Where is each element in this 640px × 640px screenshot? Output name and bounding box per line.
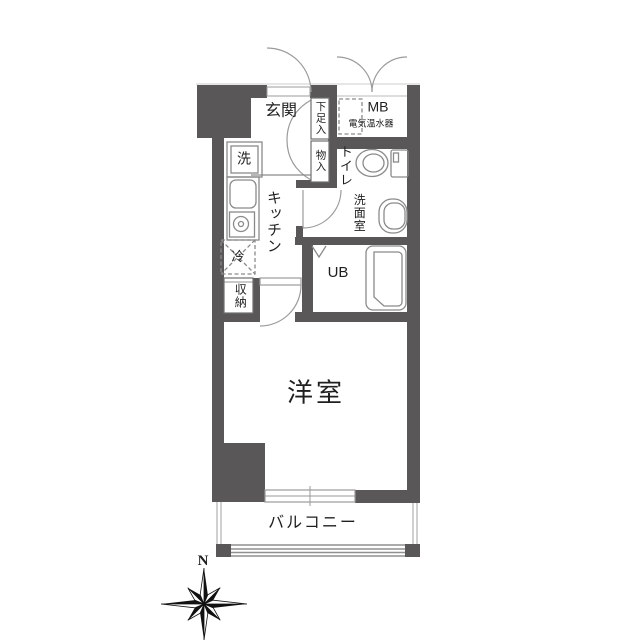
label-kitchen: キッチン (265, 190, 281, 254)
label-storage: 収納 (234, 283, 247, 309)
wall-block-topleft (197, 85, 251, 138)
wall-block-bottomleft (212, 443, 265, 502)
wall-washroom-bottom (295, 237, 420, 245)
wall-storage-stub (253, 278, 260, 313)
stove-burner (234, 217, 249, 232)
western-room-door-swing (260, 285, 301, 326)
wall-bottom-right (355, 490, 410, 503)
label-western-room: 洋室 (287, 379, 345, 406)
entrance-door-slab (267, 87, 310, 96)
stove-burner-center (239, 222, 244, 227)
compass-rose (161, 568, 247, 640)
wall-ub-left (302, 237, 313, 322)
label-shoe-box: 下足入 (314, 101, 325, 136)
label-toilet: トイレ (338, 145, 352, 187)
western-room-door-panel (260, 278, 301, 285)
label-unit-bath: UB (328, 265, 349, 281)
label-washroom: 洗面室 (353, 194, 366, 233)
washroom-door-swing (303, 190, 341, 228)
label-closet: 物入 (314, 150, 325, 173)
label-water-heater: 電気温水器 (348, 119, 393, 128)
wall-storage-bottom (212, 313, 260, 322)
wall-ub-bottom (295, 312, 420, 322)
closet-door-swing (287, 140, 311, 180)
wall-left (212, 138, 224, 443)
water-heater-box (339, 99, 362, 134)
wall-top-mid (310, 85, 337, 98)
balcony-rail-end-right (405, 544, 420, 557)
balcony-railing (231, 545, 406, 556)
floor-plan-drawing (0, 0, 640, 640)
label-meter-box: MB (368, 100, 389, 115)
floor-plan-page: 玄関 下足入 物入 MB 電気温水器 洗 キッチン 冷 トイレ 洗面室 UB 収… (0, 0, 640, 640)
label-north: N (198, 554, 209, 570)
ub-door-mark (312, 246, 326, 257)
label-entrance: 玄関 (265, 104, 297, 121)
label-balcony: バルコニー (268, 516, 358, 533)
balcony-rail-end-left (216, 544, 231, 557)
label-fridge: 冷 (231, 250, 244, 264)
mb-door-swing-left (337, 57, 372, 92)
label-washer: 洗 (237, 152, 251, 167)
toilet-fixture (356, 150, 408, 178)
kitchen-sink (230, 180, 256, 208)
mb-door-swing-right (372, 57, 407, 92)
entrance-door-swing (267, 48, 311, 92)
washbasin (379, 199, 407, 233)
bathtub (366, 246, 406, 310)
